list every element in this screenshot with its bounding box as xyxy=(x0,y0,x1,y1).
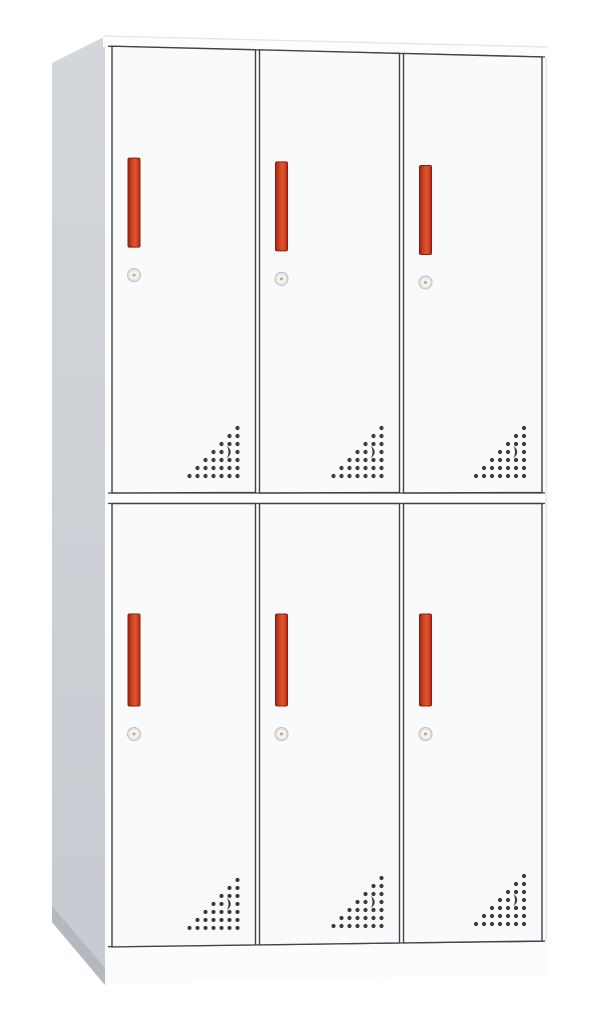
vent-dot xyxy=(379,434,383,438)
vent-dot xyxy=(227,434,231,438)
vent-dot xyxy=(235,926,239,930)
vent-dot xyxy=(211,926,215,930)
vent-dot xyxy=(482,922,486,926)
vent-dot xyxy=(474,474,478,478)
vent-dot xyxy=(187,474,191,478)
vent-dot xyxy=(490,906,494,910)
vent-dot xyxy=(522,922,526,926)
vent-dot xyxy=(203,466,207,470)
vent-dot xyxy=(506,898,510,902)
vent-dot xyxy=(474,922,478,926)
vent-dot xyxy=(490,922,494,926)
vent-dot xyxy=(379,892,383,896)
vent-dot xyxy=(522,426,526,430)
vent-dot xyxy=(506,922,510,926)
vent-dot xyxy=(203,926,207,930)
locker-door-top-right xyxy=(404,53,543,493)
vent-dot xyxy=(355,924,359,928)
vent-dot xyxy=(498,474,502,478)
door-face xyxy=(404,53,543,493)
vent-dot xyxy=(498,466,502,470)
vent-dot xyxy=(195,918,199,922)
vent-dot xyxy=(219,474,223,478)
base-plinth xyxy=(105,942,547,984)
vent-dot xyxy=(363,474,367,478)
vent-dot xyxy=(355,466,359,470)
vent-dot xyxy=(522,906,526,910)
door-face xyxy=(260,50,400,493)
vent-dot xyxy=(219,442,223,446)
vent-dot xyxy=(355,916,359,920)
vent-dot xyxy=(219,450,223,454)
vent-dot xyxy=(235,442,239,446)
vent-dot xyxy=(235,450,239,454)
vent-dot xyxy=(514,434,518,438)
vent-dot xyxy=(219,894,223,898)
vent-dot xyxy=(490,458,494,462)
vent-dot xyxy=(363,442,367,446)
vent-dot xyxy=(203,474,207,478)
vent-dot xyxy=(498,458,502,462)
vent-dot xyxy=(347,924,351,928)
vent-dot xyxy=(211,910,215,914)
vent-dot xyxy=(235,434,239,438)
vent-dot xyxy=(339,466,343,470)
vent-dot xyxy=(514,474,518,478)
vent-dot xyxy=(195,474,199,478)
lock-keyhole-icon xyxy=(280,732,283,735)
vent-dot xyxy=(522,450,526,454)
vent-dot xyxy=(482,474,486,478)
vent-dot xyxy=(371,892,375,896)
vent-dot xyxy=(227,926,231,930)
vent-dot xyxy=(211,450,215,454)
vent-dot xyxy=(514,442,518,446)
vent-dot xyxy=(219,902,223,906)
vent-dot xyxy=(339,474,343,478)
vent-dot xyxy=(211,902,215,906)
vent-dot xyxy=(498,906,502,910)
vent-dot xyxy=(355,900,359,904)
vent-dot xyxy=(379,450,383,454)
vent-dot xyxy=(235,894,239,898)
vent-dot xyxy=(363,900,367,904)
vent-dot xyxy=(379,474,383,478)
vent-dot xyxy=(506,458,510,462)
vent-dot xyxy=(355,458,359,462)
lock-keyhole-icon xyxy=(132,274,135,277)
vent-dot xyxy=(347,474,351,478)
door-face xyxy=(112,504,256,947)
vent-dot xyxy=(347,916,351,920)
vent-dot xyxy=(195,466,199,470)
locker-door-bottom-right xyxy=(404,504,543,943)
lock-keyhole-icon xyxy=(424,732,427,735)
vent-dot xyxy=(379,458,383,462)
vent-dot xyxy=(498,450,502,454)
vent-dot xyxy=(514,890,518,894)
vent-dot xyxy=(506,442,510,446)
door-handle xyxy=(276,162,288,251)
vent-dot xyxy=(514,466,518,470)
vent-dot xyxy=(522,466,526,470)
lock-keyhole-icon xyxy=(132,732,135,735)
vent-dot xyxy=(219,466,223,470)
vent-dot xyxy=(482,466,486,470)
vent-dot xyxy=(339,916,343,920)
vent-dot xyxy=(490,466,494,470)
vent-dot xyxy=(371,466,375,470)
vent-dot xyxy=(211,918,215,922)
door-handle xyxy=(420,614,432,706)
vent-dot xyxy=(203,458,207,462)
vent-dot xyxy=(514,914,518,918)
vent-dot xyxy=(371,924,375,928)
vent-dot xyxy=(227,918,231,922)
vent-dot xyxy=(227,894,231,898)
vent-dot xyxy=(363,908,367,912)
vent-dot xyxy=(506,890,510,894)
vent-dot xyxy=(347,908,351,912)
vent-dot xyxy=(522,898,526,902)
locker-door-top-middle xyxy=(260,50,400,493)
vent-dot xyxy=(371,916,375,920)
door-handle xyxy=(128,614,140,706)
vent-dot xyxy=(355,450,359,454)
lock-keyhole-icon xyxy=(424,281,427,284)
vent-dot xyxy=(379,426,383,430)
vent-dot xyxy=(363,458,367,462)
vent-dot xyxy=(363,450,367,454)
vent-dot xyxy=(235,910,239,914)
vent-dot xyxy=(195,926,199,930)
vent-dot xyxy=(514,882,518,886)
vent-dot xyxy=(506,906,510,910)
locker-door-top-left xyxy=(112,46,256,493)
vent-dot xyxy=(379,924,383,928)
vent-dot xyxy=(211,458,215,462)
vent-dot xyxy=(331,474,335,478)
vent-dot xyxy=(522,434,526,438)
vent-dot xyxy=(506,914,510,918)
vent-dot xyxy=(371,458,375,462)
vent-dot xyxy=(219,910,223,914)
vent-dot xyxy=(203,910,207,914)
door-handle xyxy=(128,158,140,247)
vent-dot xyxy=(235,474,239,478)
vent-dot xyxy=(363,892,367,896)
vent-dot xyxy=(371,434,375,438)
vent-dot xyxy=(347,458,351,462)
vent-dot xyxy=(498,922,502,926)
vent-dot xyxy=(219,926,223,930)
locker-door-bottom-middle xyxy=(260,504,400,945)
vent-dot xyxy=(235,466,239,470)
vent-dot xyxy=(211,474,215,478)
vent-dot xyxy=(219,918,223,922)
vent-dot xyxy=(363,466,367,470)
vent-dot xyxy=(227,886,231,890)
vent-dot xyxy=(506,466,510,470)
vent-dot xyxy=(363,916,367,920)
product-image-locker xyxy=(0,0,605,1009)
vent-dot xyxy=(235,878,239,882)
vent-dot xyxy=(522,890,526,894)
vent-dot xyxy=(379,900,383,904)
door-handle xyxy=(420,165,432,254)
vent-dot xyxy=(490,474,494,478)
vent-dot xyxy=(379,876,383,880)
vent-dot xyxy=(522,914,526,918)
vent-dot xyxy=(363,924,367,928)
vent-dot xyxy=(379,466,383,470)
vent-dot xyxy=(227,442,231,446)
side-panel xyxy=(52,37,105,986)
locker-illustration xyxy=(0,0,605,1009)
vent-dot xyxy=(522,474,526,478)
vent-dot xyxy=(522,882,526,886)
vent-dot xyxy=(227,910,231,914)
vent-dot xyxy=(235,886,239,890)
vent-dot xyxy=(514,458,518,462)
door-face xyxy=(260,504,400,945)
vent-dot xyxy=(203,918,207,922)
vent-dot xyxy=(522,874,526,878)
locker-door-bottom-left xyxy=(112,504,256,947)
vent-dot xyxy=(379,908,383,912)
door-face xyxy=(404,504,543,943)
vent-dot xyxy=(506,474,510,478)
vent-dot xyxy=(379,442,383,446)
vent-dot xyxy=(235,902,239,906)
vent-dot xyxy=(355,474,359,478)
door-handle xyxy=(276,614,288,706)
vent-dot xyxy=(331,924,335,928)
vent-dot xyxy=(187,926,191,930)
vent-dot xyxy=(235,458,239,462)
vent-dot xyxy=(506,450,510,454)
vent-dot xyxy=(498,898,502,902)
vent-dot xyxy=(219,458,223,462)
vent-dot xyxy=(235,918,239,922)
vent-dot xyxy=(339,924,343,928)
vent-dot xyxy=(379,916,383,920)
vent-dot xyxy=(227,458,231,462)
vent-dot xyxy=(514,922,518,926)
vent-dot xyxy=(514,906,518,910)
vent-dot xyxy=(227,474,231,478)
vent-dot xyxy=(235,426,239,430)
vent-dot xyxy=(211,466,215,470)
vent-dot xyxy=(498,914,502,918)
vent-dot xyxy=(371,908,375,912)
lock-keyhole-icon xyxy=(280,277,283,280)
vent-dot xyxy=(482,914,486,918)
vent-dot xyxy=(379,884,383,888)
vent-dot xyxy=(522,458,526,462)
vent-dot xyxy=(347,466,351,470)
vent-dot xyxy=(490,914,494,918)
vent-dot xyxy=(227,466,231,470)
vent-dot xyxy=(371,884,375,888)
vent-dot xyxy=(371,474,375,478)
vent-dot xyxy=(355,908,359,912)
vent-dot xyxy=(522,442,526,446)
vent-dot xyxy=(371,442,375,446)
